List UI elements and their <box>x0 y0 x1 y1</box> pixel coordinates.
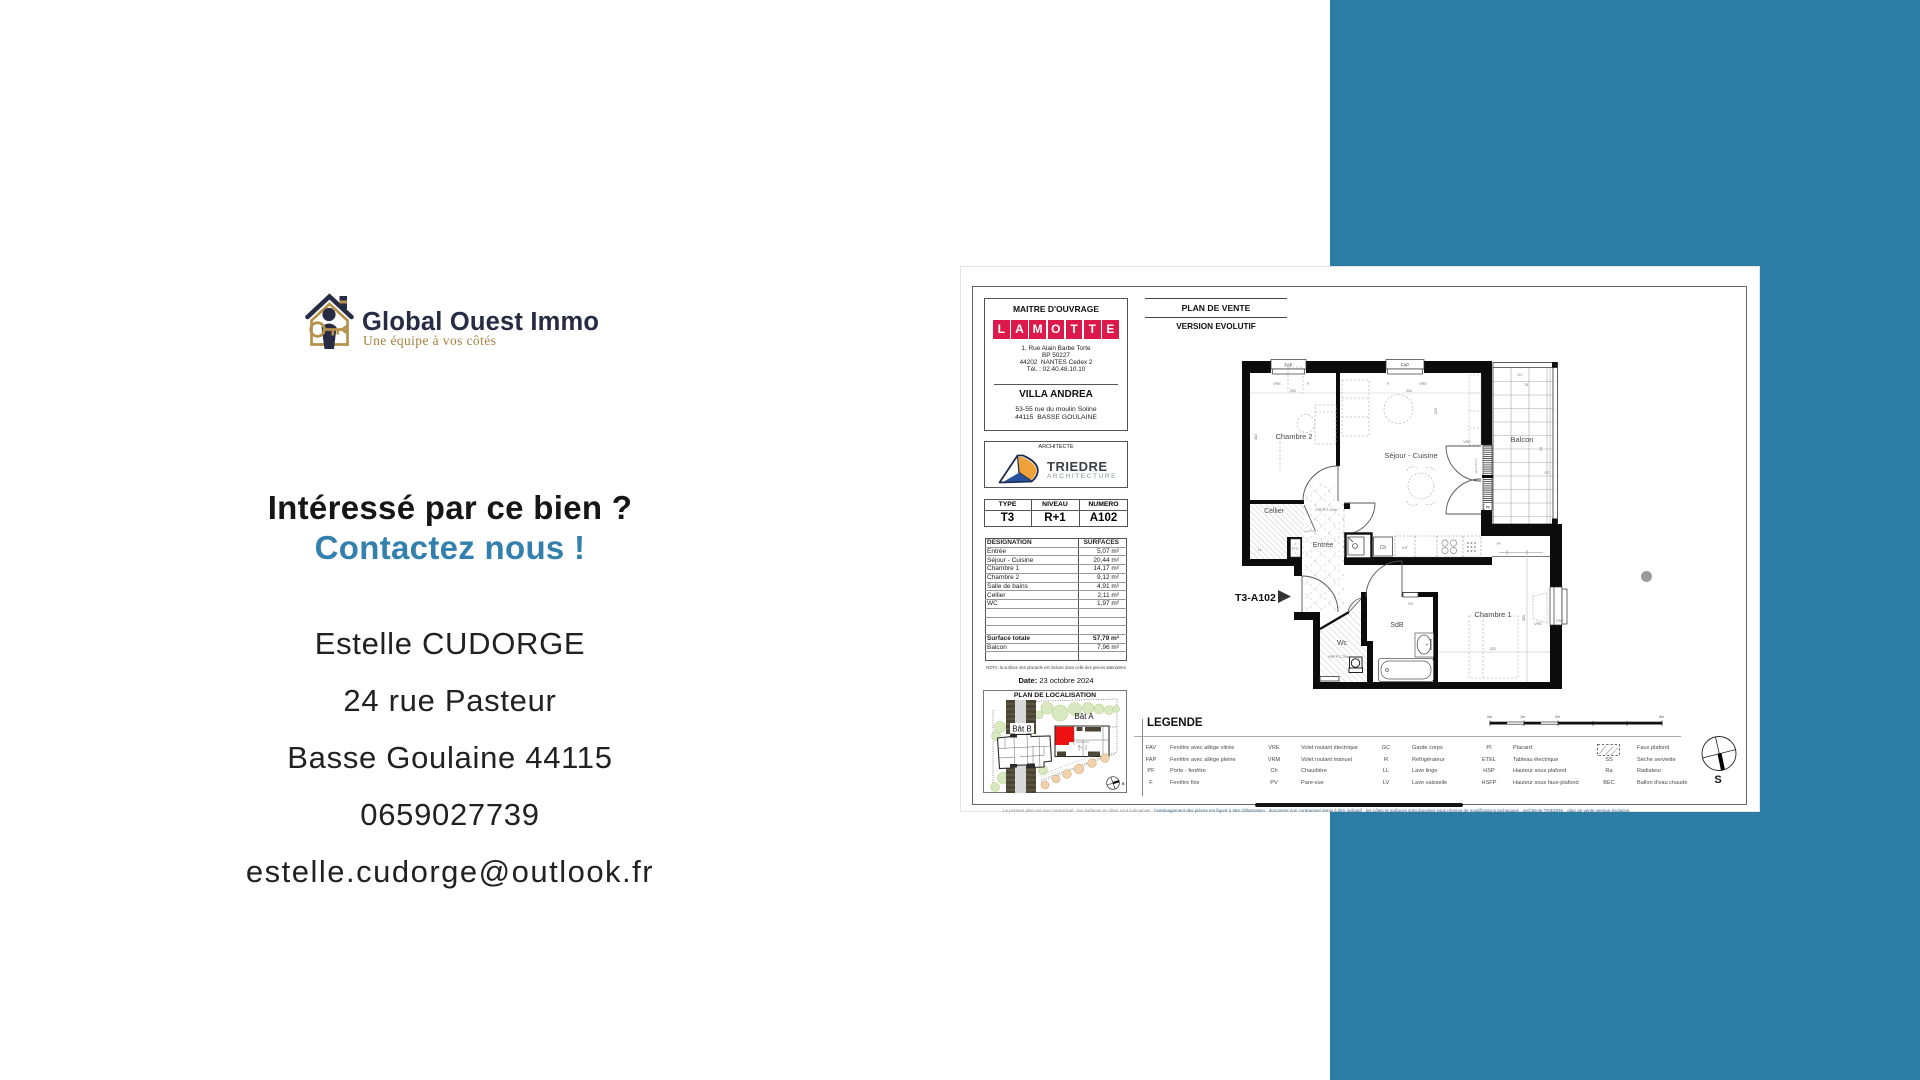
svg-text:Wc: Wc <box>1337 640 1348 647</box>
svg-text:F: F <box>1295 542 1297 546</box>
svg-text:404: 404 <box>1406 389 1412 393</box>
svg-text:Balcon: Balcon <box>1511 435 1534 444</box>
svg-text:VRE: VRE <box>1419 382 1427 386</box>
svg-text:Séjour - Cuisine: Séjour - Cuisine <box>1384 451 1437 460</box>
svg-text:VRE: VRE <box>1273 382 1281 386</box>
svg-text:322: 322 <box>1490 647 1496 651</box>
svg-text:Ch: Ch <box>1380 545 1387 551</box>
svg-text:Entrée: Entrée <box>1313 542 1334 549</box>
svg-text:Cellier: Cellier <box>1264 508 1285 515</box>
svg-text:529: 529 <box>1434 408 1438 414</box>
svg-text:ETEL: ETEL <box>1292 547 1299 551</box>
svg-text:252: 252 <box>1290 389 1296 393</box>
svg-text:seuil 10 cm: seuil 10 cm <box>1474 458 1478 474</box>
svg-text:VRE: VRE <box>1534 622 1542 626</box>
svg-text:F: F <box>1387 382 1390 386</box>
svg-text:PF: PF <box>1486 506 1490 510</box>
svg-text:LV: LV <box>1402 545 1407 550</box>
svg-text:Bât A: Bât A <box>1074 712 1094 721</box>
svg-text:GC: GC <box>1544 471 1550 475</box>
svg-text:SdB: SdB <box>1390 622 1404 629</box>
svg-text:LL: LL <box>1258 548 1262 552</box>
svg-text:PI: PI <box>1497 542 1501 546</box>
svg-text:HSFP:2.20m: HSFP:2.20m <box>1328 655 1350 659</box>
svg-text:0m: 0m <box>1487 715 1492 719</box>
svg-text:S: S <box>1714 774 1721 786</box>
svg-text:VRE: VRE <box>1463 440 1471 444</box>
svg-text:FAP: FAP <box>1401 363 1409 368</box>
svg-text:362: 362 <box>1254 434 1258 440</box>
svg-text:Chambre 1: Chambre 1 <box>1474 610 1511 619</box>
svg-text:Bât B: Bât B <box>1012 725 1032 734</box>
svg-text:350: 350 <box>1522 615 1526 621</box>
svg-text:78: 78 <box>1524 383 1528 387</box>
svg-text:5m: 5m <box>1659 715 1664 719</box>
svg-text:44: 44 <box>1539 447 1543 451</box>
svg-text:FAP: FAP <box>1556 619 1564 623</box>
svg-text:SS: SS <box>1408 602 1413 606</box>
svg-text:HSFP:2.20m: HSFP:2.20m <box>1315 508 1337 512</box>
svg-text:Chambre 2: Chambre 2 <box>1275 432 1312 441</box>
svg-text:2m: 2m <box>1555 715 1560 719</box>
svg-text:T3-A102: T3-A102 <box>1235 592 1276 604</box>
svg-text:1m: 1m <box>1520 715 1525 719</box>
svg-text:GC: GC <box>1517 373 1523 377</box>
svg-text:F: F <box>1307 382 1310 386</box>
svg-text:s: s <box>1122 781 1125 786</box>
